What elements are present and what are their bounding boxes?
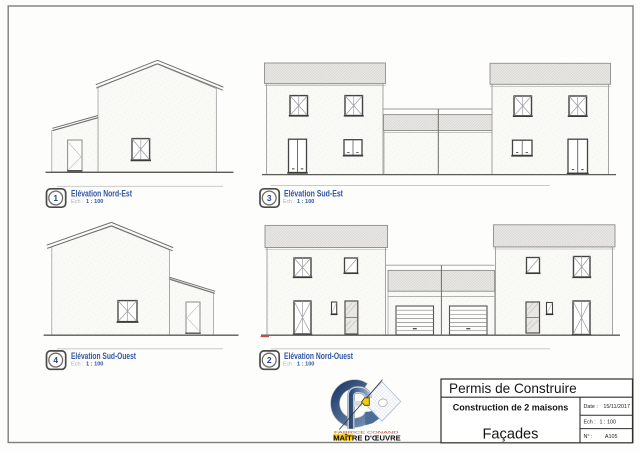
- svg-text:Elévation Sud-Ouest: Elévation Sud-Ouest: [71, 351, 136, 361]
- svg-text:Façades: Façades: [483, 427, 539, 443]
- svg-text:Ech :: Ech :: [283, 362, 295, 368]
- svg-text:Ech :: Ech :: [584, 419, 596, 425]
- svg-text:2: 2: [267, 355, 272, 365]
- svg-text:4: 4: [53, 355, 58, 365]
- svg-text:3: 3: [267, 193, 272, 203]
- svg-text:Elévation Nord-Est: Elévation Nord-Est: [71, 188, 132, 198]
- svg-text:Ech :: Ech :: [71, 199, 84, 205]
- svg-text:Ech :: Ech :: [71, 362, 84, 368]
- svg-text:A105: A105: [605, 434, 618, 440]
- svg-text:15/11/2017: 15/11/2017: [603, 404, 630, 410]
- svg-text:1 : 100: 1 : 100: [86, 199, 103, 205]
- svg-text:Ech :: Ech :: [283, 199, 295, 205]
- svg-text:1 : 100: 1 : 100: [86, 362, 103, 368]
- svg-text:1 : 100: 1 : 100: [297, 199, 314, 205]
- svg-text:1: 1: [53, 193, 58, 203]
- svg-text:1 : 100: 1 : 100: [297, 362, 314, 368]
- svg-text:1 : 100: 1 : 100: [600, 419, 617, 425]
- svg-text:MAÎTRE D'ŒUVRE: MAÎTRE D'ŒUVRE: [333, 433, 401, 442]
- svg-text:Elévation Nord-Ouest: Elévation Nord-Ouest: [284, 351, 353, 361]
- svg-text:Permis de Construire: Permis de Construire: [449, 381, 577, 396]
- svg-text:N° :: N° :: [584, 434, 593, 440]
- svg-text:Date :: Date :: [584, 404, 598, 410]
- svg-text:Elévation Sud-Est: Elévation Sud-Est: [284, 188, 343, 198]
- svg-text:Construction de 2 maisons: Construction de 2 maisons: [453, 403, 569, 413]
